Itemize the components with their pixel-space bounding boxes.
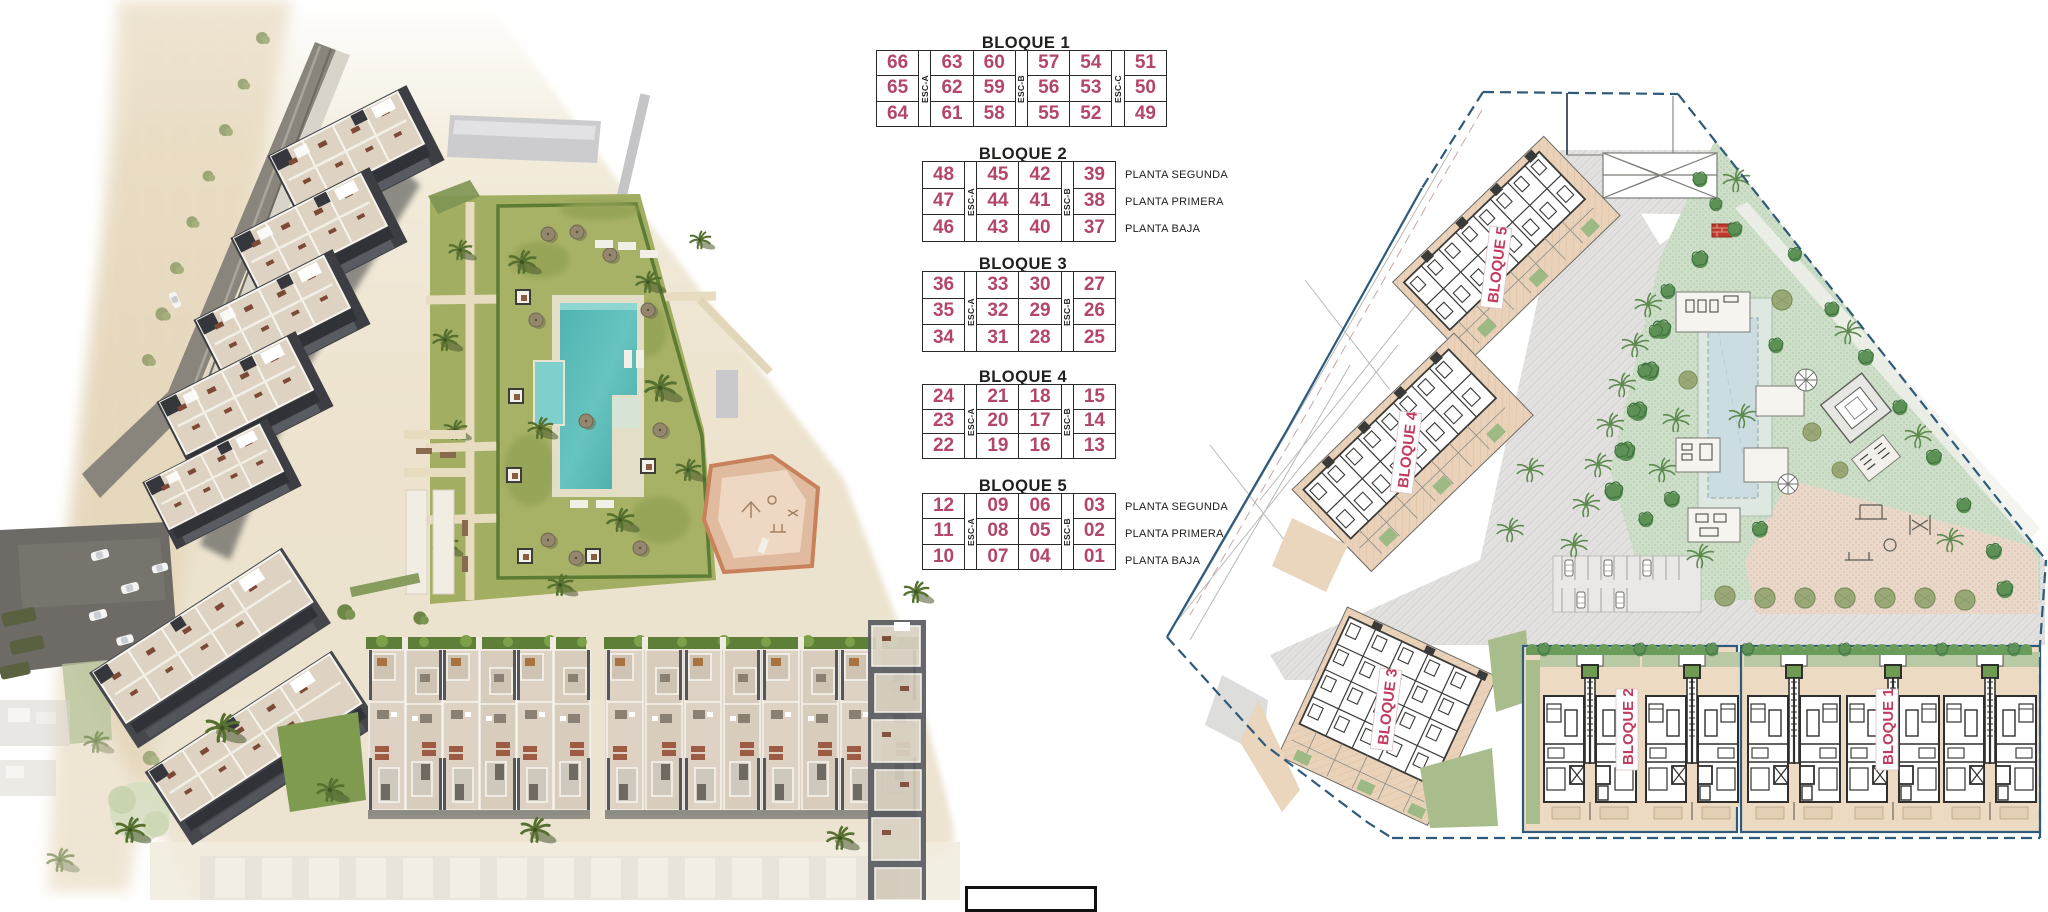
svg-text:BLOQUE 2: BLOQUE 2 [1620, 688, 1637, 765]
svg-text:BLOQUE 1: BLOQUE 1 [1880, 688, 1897, 765]
